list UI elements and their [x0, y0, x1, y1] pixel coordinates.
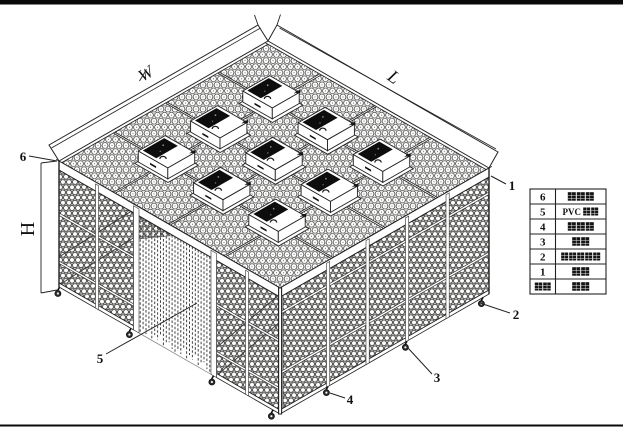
svg-text:1: 1 [540, 267, 546, 279]
svg-text:4: 4 [347, 392, 354, 407]
svg-text:1: 1 [509, 178, 516, 193]
svg-text:5: 5 [540, 207, 546, 219]
svg-text:3: 3 [434, 370, 441, 385]
svg-text:3: 3 [540, 237, 546, 249]
svg-text:6: 6 [20, 149, 27, 164]
svg-text:5: 5 [97, 351, 104, 366]
svg-text:2: 2 [513, 307, 520, 322]
svg-text:4: 4 [540, 222, 546, 234]
svg-text:6: 6 [540, 192, 546, 204]
svg-text:2: 2 [540, 252, 546, 264]
svg-text:H: H [17, 222, 39, 236]
svg-text:PVC: PVC [563, 207, 582, 217]
